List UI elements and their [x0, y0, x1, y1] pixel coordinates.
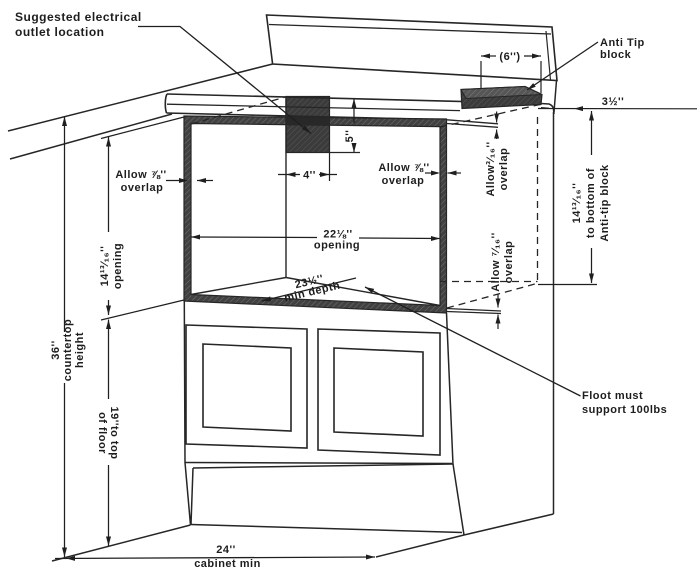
svg-text:support 100lbs: support 100lbs [582, 404, 667, 416]
svg-text:of floor: of floor [96, 412, 108, 454]
svg-text:to bottom of: to bottom of [585, 168, 597, 238]
svg-text:Allow ⅞'': Allow ⅞'' [115, 169, 166, 181]
svg-text:3½'': 3½'' [602, 96, 625, 108]
svg-text:5'': 5'' [344, 130, 356, 143]
svg-text:Allow ⁷⁄₁₆'': Allow ⁷⁄₁₆'' [490, 232, 502, 292]
svg-text:4'': 4'' [303, 170, 316, 182]
svg-text:overlap: overlap [121, 182, 164, 194]
svg-text:(6''): (6'') [499, 51, 520, 63]
svg-text:opening: opening [112, 243, 124, 289]
svg-text:14¹³⁄₁₆'': 14¹³⁄₁₆'' [571, 183, 583, 224]
svg-text:24'': 24'' [216, 544, 235, 556]
svg-text:Floot must: Floot must [582, 390, 643, 402]
svg-text:Allow ⅞'': Allow ⅞'' [378, 162, 429, 174]
svg-text:19''to top: 19''to top [108, 406, 120, 459]
svg-text:36'': 36'' [50, 340, 62, 359]
svg-text:overlap: overlap [382, 175, 425, 187]
svg-text:Suggested electrical: Suggested electrical [15, 10, 142, 24]
svg-text:overlap: overlap [498, 148, 510, 191]
svg-text:countertop: countertop [62, 319, 74, 381]
svg-text:overlap: overlap [503, 241, 515, 284]
svg-text:14¹³⁄₁₆'': 14¹³⁄₁₆'' [99, 246, 111, 287]
svg-text:cabinet min: cabinet min [194, 558, 261, 570]
svg-text:outlet location: outlet location [15, 25, 105, 39]
svg-text:block: block [600, 49, 632, 61]
svg-text:opening: opening [314, 240, 360, 252]
svg-text:height: height [74, 332, 86, 368]
svg-text:Allow³⁄₁₆'': Allow³⁄₁₆'' [485, 141, 497, 196]
svg-text:Anti Tip: Anti Tip [600, 37, 645, 49]
svg-text:Anti-tip block: Anti-tip block [599, 164, 611, 242]
